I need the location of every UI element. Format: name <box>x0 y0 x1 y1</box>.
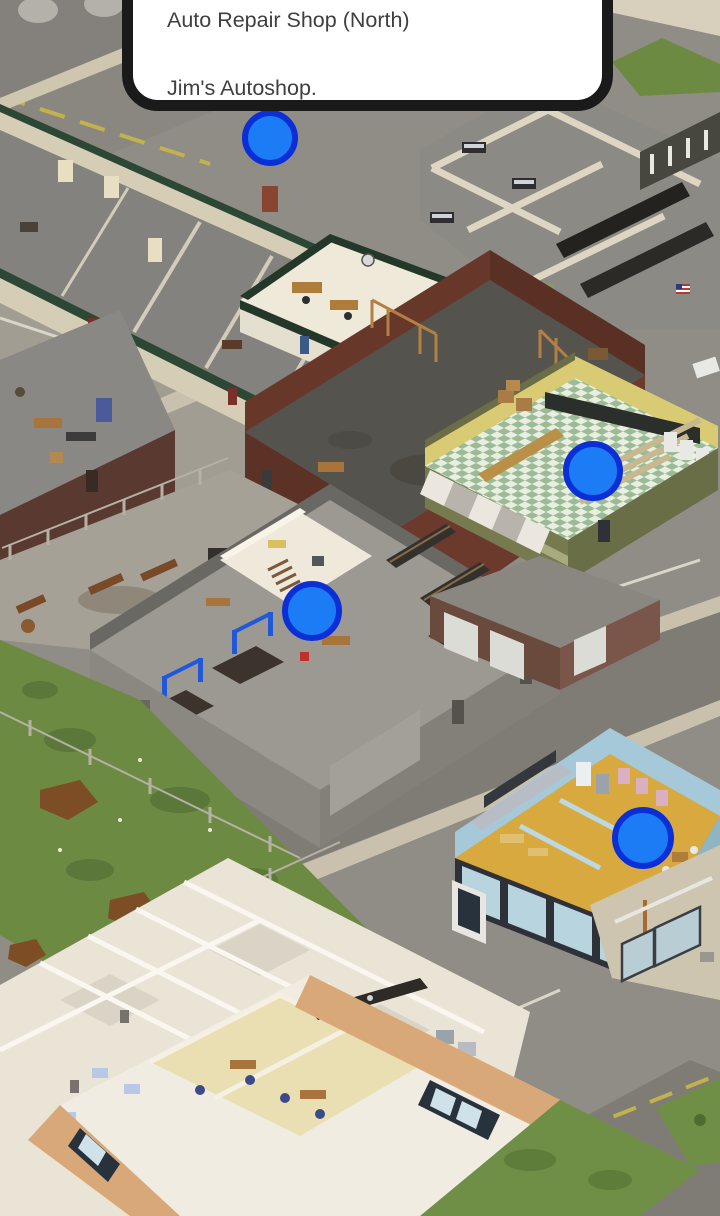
map-marker[interactable] <box>285 584 339 638</box>
tooltip-title: Auto Repair Shop (North) <box>167 8 592 32</box>
map-tooltip: Auto Repair Shop (North) Jim's Autoshop. <box>122 0 613 111</box>
map-marker[interactable] <box>615 810 671 866</box>
game-map[interactable] <box>0 0 720 1216</box>
map-marker[interactable] <box>566 444 620 498</box>
tooltip-subtitle: Jim's Autoshop. <box>167 76 592 100</box>
map-marker[interactable] <box>245 113 295 163</box>
game-screen: Auto Repair Shop (North) Jim's Autoshop. <box>0 0 720 1216</box>
us-flag <box>676 284 690 294</box>
